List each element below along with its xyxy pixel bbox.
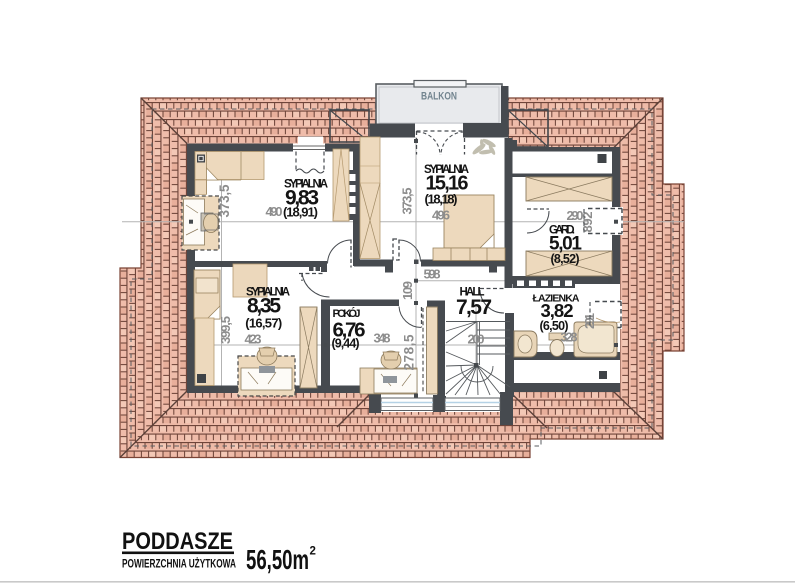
svg-text:348: 348: [374, 331, 391, 346]
svg-text:(8,52): (8,52): [551, 252, 580, 266]
svg-text:423: 423: [245, 332, 262, 347]
svg-text:109: 109: [400, 281, 415, 300]
svg-text:BALKON: BALKON: [421, 91, 457, 103]
svg-text:373,5: 373,5: [400, 188, 415, 215]
svg-text:(18,18): (18,18): [425, 192, 458, 207]
svg-text:(16,57): (16,57): [245, 316, 282, 331]
svg-text:892: 892: [580, 212, 595, 233]
svg-text:(9,44): (9,44): [332, 337, 360, 351]
svg-text:200: 200: [468, 332, 485, 347]
svg-text:3,82: 3,82: [541, 300, 574, 321]
svg-text:598: 598: [424, 267, 441, 282]
svg-text:PODDASZE: PODDASZE: [122, 528, 233, 555]
svg-text:8,35: 8,35: [247, 295, 281, 318]
svg-text:278,5: 278,5: [402, 334, 417, 370]
svg-text:56,50m: 56,50m: [246, 544, 309, 575]
svg-text:(18,91): (18,91): [283, 205, 318, 220]
svg-text:373,5: 373,5: [217, 184, 232, 217]
svg-text:2: 2: [310, 546, 316, 558]
svg-text:POWIERZCHNIA UŻYTKOWA: POWIERZCHNIA UŻYTKOWA: [122, 558, 236, 571]
svg-text:490: 490: [266, 204, 283, 219]
svg-text:399,5: 399,5: [218, 316, 233, 344]
svg-text:328: 328: [561, 331, 578, 345]
svg-text:7,57: 7,57: [456, 296, 492, 319]
svg-text:496: 496: [432, 208, 450, 223]
